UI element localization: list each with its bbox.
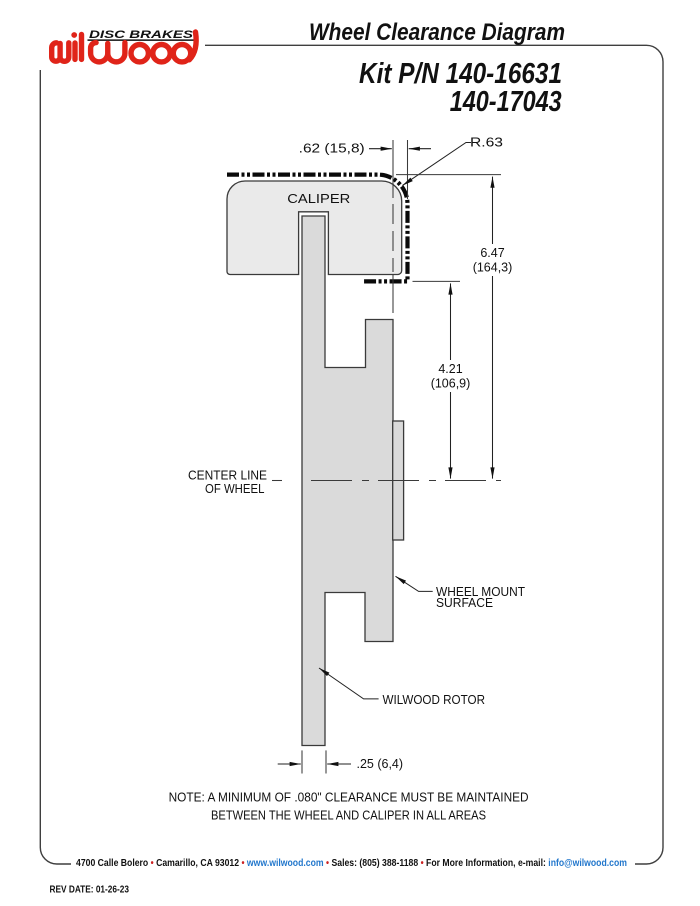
svg-text:SURFACE: SURFACE <box>436 596 493 610</box>
svg-text:WILWOOD ROTOR: WILWOOD ROTOR <box>383 693 486 707</box>
svg-text:140-17043: 140-17043 <box>450 86 562 118</box>
svg-text:Wheel Clearance Diagram: Wheel Clearance Diagram <box>309 19 565 46</box>
svg-text:4700 Calle Bolero • Camarillo,: 4700 Calle Bolero • Camarillo, CA 93012 … <box>76 857 627 869</box>
svg-text:CALIPER: CALIPER <box>287 192 350 206</box>
svg-text:6.47: 6.47 <box>480 246 504 260</box>
svg-text:.62 (15,8): .62 (15,8) <box>299 142 365 156</box>
svg-text:R.63: R.63 <box>470 135 503 149</box>
svg-text:REV DATE: 01-26-23: REV DATE: 01-26-23 <box>50 885 130 896</box>
svg-text:(106,9): (106,9) <box>431 376 471 390</box>
svg-text:.25 (6,4): .25 (6,4) <box>357 757 404 771</box>
svg-text:DISC BRAKES: DISC BRAKES <box>89 29 194 41</box>
svg-text:4.21: 4.21 <box>438 362 462 376</box>
svg-text:NOTE: A MINIMUM OF .080" CLEAR: NOTE: A MINIMUM OF .080" CLEARANCE MUST … <box>169 790 529 805</box>
svg-text:(164,3): (164,3) <box>473 261 513 275</box>
svg-text:OF WHEEL: OF WHEEL <box>205 482 264 496</box>
svg-text:CENTER LINE: CENTER LINE <box>188 469 267 483</box>
svg-text:BETWEEN THE WHEEL AND CALIPER: BETWEEN THE WHEEL AND CALIPER IN ALL ARE… <box>211 808 486 823</box>
